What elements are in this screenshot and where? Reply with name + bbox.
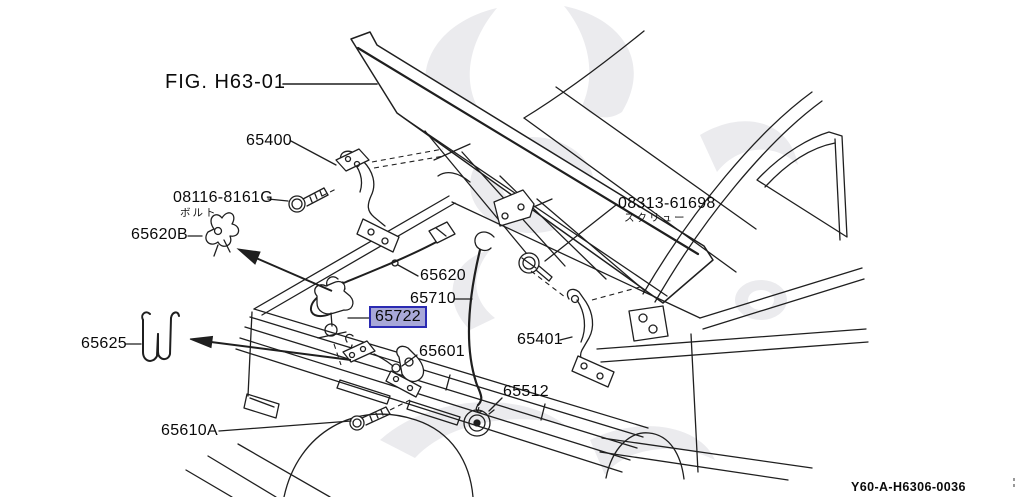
- document-reference-code: Y60-A-H6306-0036: [851, 481, 966, 495]
- pointer-arrow-line-65625: [211, 342, 351, 360]
- watermark-shape: [735, 280, 787, 320]
- leader-65620: [398, 265, 418, 276]
- watermark-shape: [700, 121, 798, 172]
- bumper-hatch: [186, 470, 232, 497]
- part-label-08116-8161g[interactable]: 08116-8161G: [173, 189, 273, 207]
- clip-hook: [171, 312, 179, 318]
- door-window-rear-edge: [835, 139, 840, 240]
- part-label-08313-61698[interactable]: 08313-61698: [618, 195, 716, 213]
- clip-hook: [142, 312, 150, 320]
- bumper-hatch: [238, 444, 330, 497]
- figure-reference-label: FIG. H63-01: [165, 71, 286, 93]
- lock-striker-65601: [386, 346, 424, 397]
- part-label-65710[interactable]: 65710: [410, 290, 456, 308]
- clip-center: [215, 228, 222, 235]
- part-label-65512[interactable]: 65512: [503, 383, 549, 401]
- dashed-screw-to-hinge: [531, 271, 565, 297]
- headlight: [244, 394, 279, 418]
- part-label-08116-kana-bolt: ボルト: [180, 208, 218, 220]
- dashed-hinge-to-mount: [592, 287, 640, 300]
- leader-65400: [291, 141, 336, 165]
- hinge-base-plate: [572, 356, 614, 387]
- screw-08313: [519, 253, 552, 281]
- hinge-arm: [567, 289, 592, 366]
- watermark-shape: [453, 250, 495, 330]
- cluster-pin-head: [392, 364, 400, 372]
- hood-hinge-65400: [336, 149, 399, 252]
- screw-shank: [536, 266, 552, 281]
- clip-u-shape: [143, 320, 158, 361]
- part-label-65601[interactable]: 65601: [419, 343, 465, 361]
- bolt-65610a: [350, 407, 390, 430]
- pointer-arrowhead-65625: [190, 337, 213, 348]
- hood-lock-recess: [438, 173, 470, 182]
- hinge-top-hole: [572, 296, 579, 303]
- rod-hook-top: [475, 232, 494, 250]
- part-label-65400[interactable]: 65400: [246, 132, 292, 150]
- body-belt-line: [601, 342, 868, 362]
- part-label-65620[interactable]: 65620: [420, 267, 466, 285]
- clip-u-shape: [158, 318, 171, 359]
- part-label-65625[interactable]: 65625: [81, 335, 127, 353]
- dashed-hinge-to-hood: [372, 149, 443, 162]
- grommet-center: [474, 420, 480, 426]
- part-label-08313-kana-screw: スクリュー: [624, 213, 687, 225]
- grille-band-line: [236, 349, 622, 472]
- bolt-head-inner: [292, 199, 302, 209]
- hood-hinge-65401: [567, 289, 668, 387]
- hinge-mount-plate: [629, 306, 668, 341]
- rocker-line: [600, 452, 788, 480]
- leader-65610a: [219, 421, 351, 431]
- dashed-bolt-to-hinge: [322, 189, 336, 196]
- part-label-65401[interactable]: 65401: [517, 331, 563, 349]
- part-label-65610a[interactable]: 65610A: [161, 422, 218, 440]
- rod-clip-65625: [142, 312, 179, 361]
- hinge-arm-inner: [577, 300, 584, 342]
- dashed-hinge-to-hood: [374, 156, 444, 168]
- hinge-top-plate: [336, 149, 369, 171]
- parts-diagram: FIG. H63-01 65400 08116-8161G ボルト 65620B…: [0, 0, 1024, 497]
- part-label-65620b[interactable]: 65620B: [131, 226, 188, 244]
- pointer-arrowhead-65620b: [238, 249, 260, 264]
- bolt-shank: [362, 407, 390, 425]
- door-sill-line: [703, 279, 864, 329]
- part-label-65722-selected[interactable]: 65722: [369, 306, 427, 328]
- bolt-08116: [289, 188, 328, 212]
- bumper-hatch: [208, 456, 276, 497]
- diagram-line-art: [0, 0, 1024, 497]
